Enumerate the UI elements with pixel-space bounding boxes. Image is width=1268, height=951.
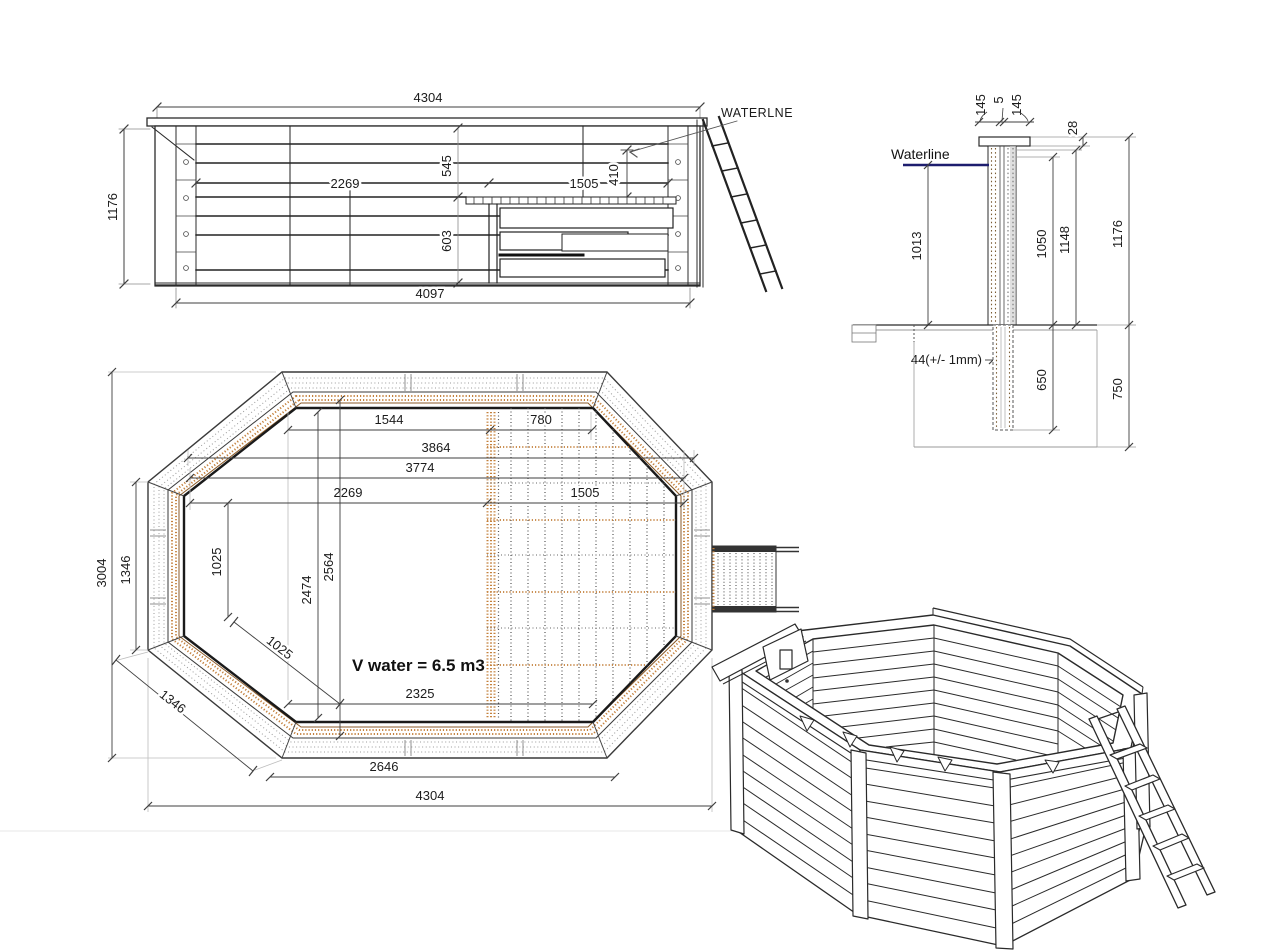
dim-side-inner-right: 1505 (570, 176, 599, 191)
dim-side-top-width: 4304 (414, 90, 443, 105)
dim-sec-plank-right: 145 (1009, 94, 1024, 116)
dim-sec-wall-total: 1176 (1110, 220, 1125, 248)
dim-sec-post-depth: 650 (1034, 369, 1049, 391)
dim-side-height: 1176 (105, 193, 120, 221)
dim-side-bottom-width: 4097 (416, 286, 445, 301)
side-waterline-label: WATERLNE (721, 106, 793, 120)
dim-plan-bottom-side: 2646 (370, 759, 399, 774)
dim-plan-left-inner-vertical: 1025 (209, 548, 224, 577)
section-detail-view: 145 5 145 28 Waterline (852, 94, 1136, 451)
dim-sec-plank-gap: 5 (991, 96, 1006, 103)
dim-plan-inner-width-b: 3774 (406, 460, 435, 475)
dim-sec-water-depth: 1013 (909, 232, 924, 261)
dim-plan-total-width: 4304 (416, 788, 445, 803)
dim-side-top-depth: 545 (439, 155, 454, 177)
dim-sec-foundation-depth: 750 (1110, 378, 1125, 400)
plan-view: 1544 780 3864 3774 2269 1505 2325 2646 4… (94, 368, 799, 812)
side-ladder (703, 117, 782, 291)
dim-plan-diagonal-side: 1346 (157, 687, 189, 717)
perspective-view (712, 608, 1215, 949)
blueprint-page: 4304 (0, 0, 1268, 951)
dim-sec-plank-thickness: 44(+/- 1mm) (911, 352, 982, 367)
plan-volume-label: V water = 6.5 m3 (352, 656, 485, 675)
dim-plan-top-left-span: 1544 (375, 412, 404, 427)
dim-plan-bottom-inner-span: 2325 (406, 686, 435, 701)
dim-side-bottom-depth: 603 (439, 230, 454, 252)
dim-sec-cap-height: 28 (1065, 121, 1080, 135)
dim-plan-left-side: 1346 (118, 556, 133, 585)
dim-sec-wall-mid: 1148 (1057, 226, 1072, 254)
dim-plan-center-height-a: 2564 (321, 553, 336, 582)
dim-sec-wall-inner: 1050 (1034, 230, 1049, 259)
dim-plan-center-height-b: 2474 (299, 576, 314, 605)
dim-plan-left-inner-span: 2269 (334, 485, 363, 500)
dim-plan-top-right-span: 780 (530, 412, 552, 427)
section-waterline-label: Waterline (891, 146, 950, 162)
skimmer-opening (780, 650, 792, 669)
dim-side-inner-left: 2269 (331, 176, 360, 191)
dim-side-waterline-depth: 410 (606, 164, 621, 186)
side-elevation-view: 4304 (105, 90, 793, 308)
plan-step (712, 546, 799, 612)
dim-plan-right-inner-span: 1505 (571, 485, 600, 500)
dim-plan-inner-width-a: 3864 (422, 440, 451, 455)
dim-plan-total-height: 3004 (94, 559, 109, 588)
blueprint-svg: 4304 (0, 0, 1268, 951)
